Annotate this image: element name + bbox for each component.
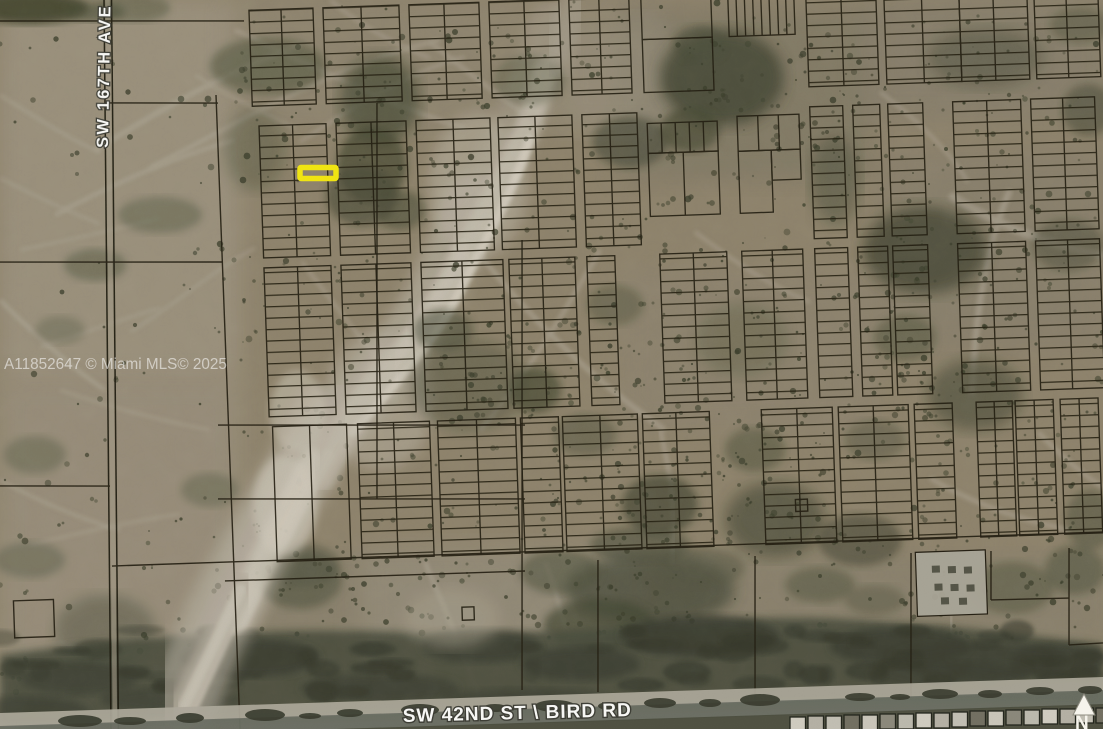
svg-text:SW 167TH AVE: SW 167TH AVE [94,4,115,148]
svg-text:N: N [1075,713,1089,729]
svg-text:A11852647 © Miami MLS© 2025: A11852647 © Miami MLS© 2025 [4,356,227,373]
